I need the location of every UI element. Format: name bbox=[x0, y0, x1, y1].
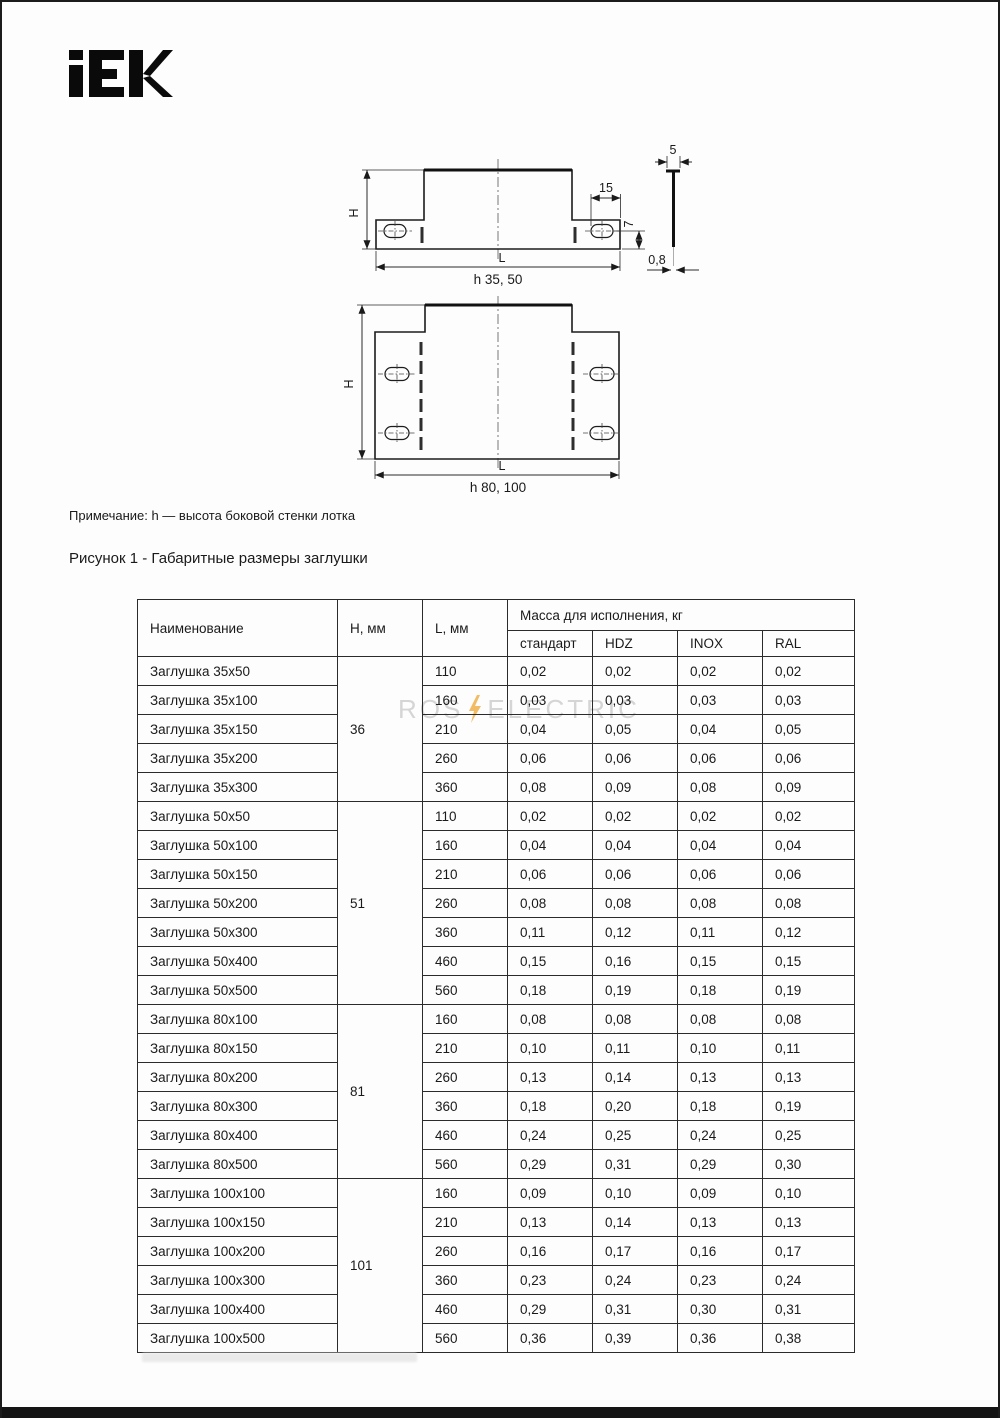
cell-mass-inox: 0,03 bbox=[678, 686, 763, 715]
figure-caption: Рисунок 1 - Габаритные размеры заглушки bbox=[69, 550, 368, 567]
cell-name: Заглушка 80x500 bbox=[138, 1150, 338, 1179]
cell-name: Заглушка 80x300 bbox=[138, 1092, 338, 1121]
cell-mass-hdz: 0,11 bbox=[593, 1034, 678, 1063]
cell-l: 360 bbox=[423, 1266, 508, 1295]
cell-mass-hdz: 0,10 bbox=[593, 1179, 678, 1208]
cell-mass-hdz: 0,17 bbox=[593, 1237, 678, 1266]
cell-mass-стандарт: 0,03 bbox=[508, 686, 593, 715]
cell-mass-ral: 0,11 bbox=[763, 1034, 855, 1063]
cell-l: 460 bbox=[423, 1121, 508, 1150]
dim-0-8-label: 0,8 bbox=[648, 253, 665, 267]
dim-5-label: 5 bbox=[670, 143, 677, 157]
dim-H-label: H bbox=[347, 208, 361, 217]
figure-1-bottom-drawing: H L h 80, 100 bbox=[342, 292, 682, 504]
cell-mass-hdz: 0,19 bbox=[593, 976, 678, 1005]
table-row: Заглушка 80x5005600,290,310,290,30 bbox=[138, 1150, 855, 1179]
cell-mass-стандарт: 0,11 bbox=[508, 918, 593, 947]
cell-l: 160 bbox=[423, 1005, 508, 1034]
table-row: Заглушка 50x3003600,110,120,110,12 bbox=[138, 918, 855, 947]
table-row: Заглушка 50x1001600,040,040,040,04 bbox=[138, 831, 855, 860]
cell-mass-стандарт: 0,29 bbox=[508, 1150, 593, 1179]
cell-mass-стандарт: 0,08 bbox=[508, 1005, 593, 1034]
cell-l: 260 bbox=[423, 889, 508, 918]
cell-mass-hdz: 0,12 bbox=[593, 918, 678, 947]
cell-name: Заглушка 80x200 bbox=[138, 1063, 338, 1092]
cell-mass-ral: 0,19 bbox=[763, 1092, 855, 1121]
cell-l: 360 bbox=[423, 773, 508, 802]
col-header-ral: RAL bbox=[763, 631, 855, 657]
cell-mass-inox: 0,08 bbox=[678, 1005, 763, 1034]
cell-mass-ral: 0,03 bbox=[763, 686, 855, 715]
cell-l: 260 bbox=[423, 1237, 508, 1266]
table-row: Заглушка 80x3003600,180,200,180,19 bbox=[138, 1092, 855, 1121]
col-header-l: L, мм bbox=[423, 600, 508, 657]
cell-mass-ral: 0,06 bbox=[763, 744, 855, 773]
cell-h: 81 bbox=[338, 1005, 423, 1179]
cell-name: Заглушка 50x100 bbox=[138, 831, 338, 860]
cell-mass-inox: 0,13 bbox=[678, 1208, 763, 1237]
cell-mass-ral: 0,02 bbox=[763, 657, 855, 686]
cell-mass-ral: 0,10 bbox=[763, 1179, 855, 1208]
spec-table-body: Заглушка 35x50361100,020,020,020,02Заглу… bbox=[138, 657, 855, 1353]
dim-H-label: H bbox=[342, 379, 356, 388]
cell-name: Заглушка 100x150 bbox=[138, 1208, 338, 1237]
cell-mass-стандарт: 0,02 bbox=[508, 657, 593, 686]
cell-mass-inox: 0,36 bbox=[678, 1324, 763, 1353]
cell-name: Заглушка 50x500 bbox=[138, 976, 338, 1005]
iek-logo: IEK bbox=[69, 47, 174, 102]
cell-l: 260 bbox=[423, 1063, 508, 1092]
cell-mass-стандарт: 0,10 bbox=[508, 1034, 593, 1063]
cell-name: Заглушка 35x100 bbox=[138, 686, 338, 715]
cell-name: Заглушка 50x150 bbox=[138, 860, 338, 889]
cell-mass-стандарт: 0,04 bbox=[508, 831, 593, 860]
cell-mass-ral: 0,05 bbox=[763, 715, 855, 744]
cell-mass-стандарт: 0,08 bbox=[508, 889, 593, 918]
cell-l: 210 bbox=[423, 1208, 508, 1237]
cell-mass-hdz: 0,05 bbox=[593, 715, 678, 744]
cell-mass-inox: 0,09 bbox=[678, 1179, 763, 1208]
cell-mass-hdz: 0,14 bbox=[593, 1208, 678, 1237]
table-row: Заглушка 80x4004600,240,250,240,25 bbox=[138, 1121, 855, 1150]
cell-mass-ral: 0,19 bbox=[763, 976, 855, 1005]
cell-mass-inox: 0,29 bbox=[678, 1150, 763, 1179]
cell-mass-inox: 0,18 bbox=[678, 976, 763, 1005]
cell-l: 360 bbox=[423, 918, 508, 947]
cell-mass-ral: 0,25 bbox=[763, 1121, 855, 1150]
cell-mass-inox: 0,06 bbox=[678, 744, 763, 773]
cell-mass-hdz: 0,06 bbox=[593, 860, 678, 889]
table-row: Заглушка 35x1502100,040,050,040,05 bbox=[138, 715, 855, 744]
cell-name: Заглушка 35x150 bbox=[138, 715, 338, 744]
cell-mass-hdz: 0,04 bbox=[593, 831, 678, 860]
cell-mass-стандарт: 0,13 bbox=[508, 1208, 593, 1237]
spec-table: Наименование H, мм L, мм Масса для испол… bbox=[137, 599, 855, 1353]
fig2-subcaption: h 80, 100 bbox=[470, 480, 526, 495]
cell-name: Заглушка 80x100 bbox=[138, 1005, 338, 1034]
cell-mass-inox: 0,23 bbox=[678, 1266, 763, 1295]
cell-mass-hdz: 0,16 bbox=[593, 947, 678, 976]
cell-mass-ral: 0,08 bbox=[763, 889, 855, 918]
cell-mass-inox: 0,02 bbox=[678, 802, 763, 831]
cell-name: Заглушка 35x300 bbox=[138, 773, 338, 802]
table-row: Заглушка 35x3003600,080,090,080,09 bbox=[138, 773, 855, 802]
col-header-inox: INOX bbox=[678, 631, 763, 657]
cell-name: Заглушка 100x200 bbox=[138, 1237, 338, 1266]
cell-mass-ral: 0,06 bbox=[763, 860, 855, 889]
cell-mass-ral: 0,12 bbox=[763, 918, 855, 947]
iek-logo-graphic: IEK bbox=[69, 47, 174, 97]
cell-mass-ral: 0,09 bbox=[763, 773, 855, 802]
cell-mass-hdz: 0,06 bbox=[593, 744, 678, 773]
cell-mass-hdz: 0,20 bbox=[593, 1092, 678, 1121]
cell-mass-hdz: 0,09 bbox=[593, 773, 678, 802]
cell-name: Заглушка 80x400 bbox=[138, 1121, 338, 1150]
cell-mass-стандарт: 0,06 bbox=[508, 744, 593, 773]
cell-mass-стандарт: 0,23 bbox=[508, 1266, 593, 1295]
cell-mass-inox: 0,08 bbox=[678, 773, 763, 802]
cell-l: 260 bbox=[423, 744, 508, 773]
cell-mass-inox: 0,24 bbox=[678, 1121, 763, 1150]
cell-name: Заглушка 50x200 bbox=[138, 889, 338, 918]
spec-table-header: Наименование H, мм L, мм Масса для испол… bbox=[138, 600, 855, 657]
dim-L-label: L bbox=[499, 459, 506, 473]
cell-l: 460 bbox=[423, 1295, 508, 1324]
cell-mass-стандарт: 0,08 bbox=[508, 773, 593, 802]
cell-l: 110 bbox=[423, 802, 508, 831]
slit-right bbox=[574, 227, 577, 243]
table-row: Заглушка 50x4004600,150,160,150,15 bbox=[138, 947, 855, 976]
cell-mass-inox: 0,10 bbox=[678, 1034, 763, 1063]
table-row: Заглушка 100x4004600,290,310,300,31 bbox=[138, 1295, 855, 1324]
cell-name: Заглушка 50x300 bbox=[138, 918, 338, 947]
col-header-hdz: HDZ bbox=[593, 631, 678, 657]
cell-mass-hdz: 0,02 bbox=[593, 657, 678, 686]
cell-mass-стандарт: 0,06 bbox=[508, 860, 593, 889]
slit-column-right bbox=[572, 342, 575, 450]
cell-mass-ral: 0,02 bbox=[763, 802, 855, 831]
cell-mass-стандарт: 0,36 bbox=[508, 1324, 593, 1353]
cell-name: Заглушка 100x300 bbox=[138, 1266, 338, 1295]
cell-mass-стандарт: 0,15 bbox=[508, 947, 593, 976]
cell-name: Заглушка 35x50 bbox=[138, 657, 338, 686]
cell-l: 210 bbox=[423, 1034, 508, 1063]
figure-1-top-drawing: H 15 7 L h 35, 50 5 bbox=[342, 142, 702, 299]
cell-mass-стандарт: 0,04 bbox=[508, 715, 593, 744]
cell-l: 560 bbox=[423, 1324, 508, 1353]
cell-name: Заглушка 35x200 bbox=[138, 744, 338, 773]
cell-l: 160 bbox=[423, 1179, 508, 1208]
table-row: Заглушка 35x50361100,020,020,020,02 bbox=[138, 657, 855, 686]
cell-mass-hdz: 0,39 bbox=[593, 1324, 678, 1353]
cell-mass-стандарт: 0,24 bbox=[508, 1121, 593, 1150]
dim-7-label: 7 bbox=[622, 220, 636, 227]
cell-l: 560 bbox=[423, 976, 508, 1005]
cell-mass-inox: 0,11 bbox=[678, 918, 763, 947]
cell-mass-стандарт: 0,29 bbox=[508, 1295, 593, 1324]
cell-mass-hdz: 0,14 bbox=[593, 1063, 678, 1092]
table-row: Заглушка 50x50511100,020,020,020,02 bbox=[138, 802, 855, 831]
cell-l: 560 bbox=[423, 1150, 508, 1179]
cell-l: 110 bbox=[423, 657, 508, 686]
cell-l: 210 bbox=[423, 860, 508, 889]
cell-name: Заглушка 100x400 bbox=[138, 1295, 338, 1324]
dim-15-label: 15 bbox=[599, 181, 613, 195]
cell-mass-inox: 0,06 bbox=[678, 860, 763, 889]
cell-mass-hdz: 0,08 bbox=[593, 1005, 678, 1034]
table-row: Заглушка 50x2002600,080,080,080,08 bbox=[138, 889, 855, 918]
cell-mass-inox: 0,04 bbox=[678, 831, 763, 860]
cell-mass-ral: 0,31 bbox=[763, 1295, 855, 1324]
cell-mass-стандарт: 0,13 bbox=[508, 1063, 593, 1092]
cell-name: Заглушка 100x100 bbox=[138, 1179, 338, 1208]
table-row: Заглушка 50x5005600,180,190,180,19 bbox=[138, 976, 855, 1005]
cell-mass-ral: 0,15 bbox=[763, 947, 855, 976]
cell-mass-ral: 0,30 bbox=[763, 1150, 855, 1179]
datasheet-page: IEK bbox=[0, 0, 1000, 1418]
page-bottom-border bbox=[2, 1407, 998, 1418]
cell-mass-стандарт: 0,18 bbox=[508, 976, 593, 1005]
slit-column-left bbox=[420, 342, 423, 450]
dim-L-label: L bbox=[499, 251, 506, 265]
cell-mass-hdz: 0,03 bbox=[593, 686, 678, 715]
scan-artifact bbox=[142, 1353, 417, 1362]
table-row: Заглушка 100x3003600,230,240,230,24 bbox=[138, 1266, 855, 1295]
cell-name: Заглушка 80x150 bbox=[138, 1034, 338, 1063]
cell-mass-hdz: 0,24 bbox=[593, 1266, 678, 1295]
table-row: Заглушка 100x1502100,130,140,130,13 bbox=[138, 1208, 855, 1237]
cell-name: Заглушка 100x500 bbox=[138, 1324, 338, 1353]
cell-mass-hdz: 0,31 bbox=[593, 1150, 678, 1179]
table-row: Заглушка 50x1502100,060,060,060,06 bbox=[138, 860, 855, 889]
table-row: Заглушка 80x2002600,130,140,130,13 bbox=[138, 1063, 855, 1092]
cell-mass-стандарт: 0,16 bbox=[508, 1237, 593, 1266]
cell-l: 160 bbox=[423, 831, 508, 860]
cell-name: Заглушка 50x50 bbox=[138, 802, 338, 831]
cell-mass-ral: 0,13 bbox=[763, 1063, 855, 1092]
cell-mass-стандарт: 0,09 bbox=[508, 1179, 593, 1208]
cell-mass-ral: 0,17 bbox=[763, 1237, 855, 1266]
slit-left bbox=[421, 227, 424, 243]
cell-mass-hdz: 0,25 bbox=[593, 1121, 678, 1150]
table-row: Заглушка 100x1001011600,090,100,090,10 bbox=[138, 1179, 855, 1208]
cell-l: 360 bbox=[423, 1092, 508, 1121]
cell-mass-hdz: 0,08 bbox=[593, 889, 678, 918]
cell-mass-hdz: 0,31 bbox=[593, 1295, 678, 1324]
cell-h: 101 bbox=[338, 1179, 423, 1353]
col-header-standard: стандарт bbox=[508, 631, 593, 657]
cell-h: 51 bbox=[338, 802, 423, 1005]
table-row: Заглушка 100x5005600,360,390,360,38 bbox=[138, 1324, 855, 1353]
cell-mass-ral: 0,38 bbox=[763, 1324, 855, 1353]
cell-mass-ral: 0,08 bbox=[763, 1005, 855, 1034]
cell-mass-ral: 0,04 bbox=[763, 831, 855, 860]
cell-mass-inox: 0,02 bbox=[678, 657, 763, 686]
cell-mass-inox: 0,04 bbox=[678, 715, 763, 744]
col-header-mass: Масса для исполнения, кг bbox=[508, 600, 855, 631]
cell-mass-inox: 0,08 bbox=[678, 889, 763, 918]
plate-outline bbox=[375, 305, 619, 459]
cell-mass-inox: 0,18 bbox=[678, 1092, 763, 1121]
table-row: Заглушка 35x2002600,060,060,060,06 bbox=[138, 744, 855, 773]
cell-mass-inox: 0,15 bbox=[678, 947, 763, 976]
fig1-subcaption: h 35, 50 bbox=[474, 272, 523, 287]
table-row: Заглушка 80x100811600,080,080,080,08 bbox=[138, 1005, 855, 1034]
cell-mass-стандарт: 0,02 bbox=[508, 802, 593, 831]
cell-mass-inox: 0,30 bbox=[678, 1295, 763, 1324]
cell-mass-стандарт: 0,18 bbox=[508, 1092, 593, 1121]
cell-l: 160 bbox=[423, 686, 508, 715]
table-row: Заглушка 35x1001600,030,030,030,03 bbox=[138, 686, 855, 715]
col-header-name: Наименование bbox=[138, 600, 338, 657]
col-header-h: H, мм bbox=[338, 600, 423, 657]
cell-mass-hdz: 0,02 bbox=[593, 802, 678, 831]
note-text: Примечание: h — высота боковой стенки ло… bbox=[69, 508, 355, 523]
cell-name: Заглушка 50x400 bbox=[138, 947, 338, 976]
table-row: Заглушка 80x1502100,100,110,100,11 bbox=[138, 1034, 855, 1063]
cell-mass-ral: 0,24 bbox=[763, 1266, 855, 1295]
cell-mass-inox: 0,13 bbox=[678, 1063, 763, 1092]
cell-l: 460 bbox=[423, 947, 508, 976]
cell-l: 210 bbox=[423, 715, 508, 744]
cell-mass-inox: 0,16 bbox=[678, 1237, 763, 1266]
cell-h: 36 bbox=[338, 657, 423, 802]
table-row: Заглушка 100x2002600,160,170,160,17 bbox=[138, 1237, 855, 1266]
cell-mass-ral: 0,13 bbox=[763, 1208, 855, 1237]
